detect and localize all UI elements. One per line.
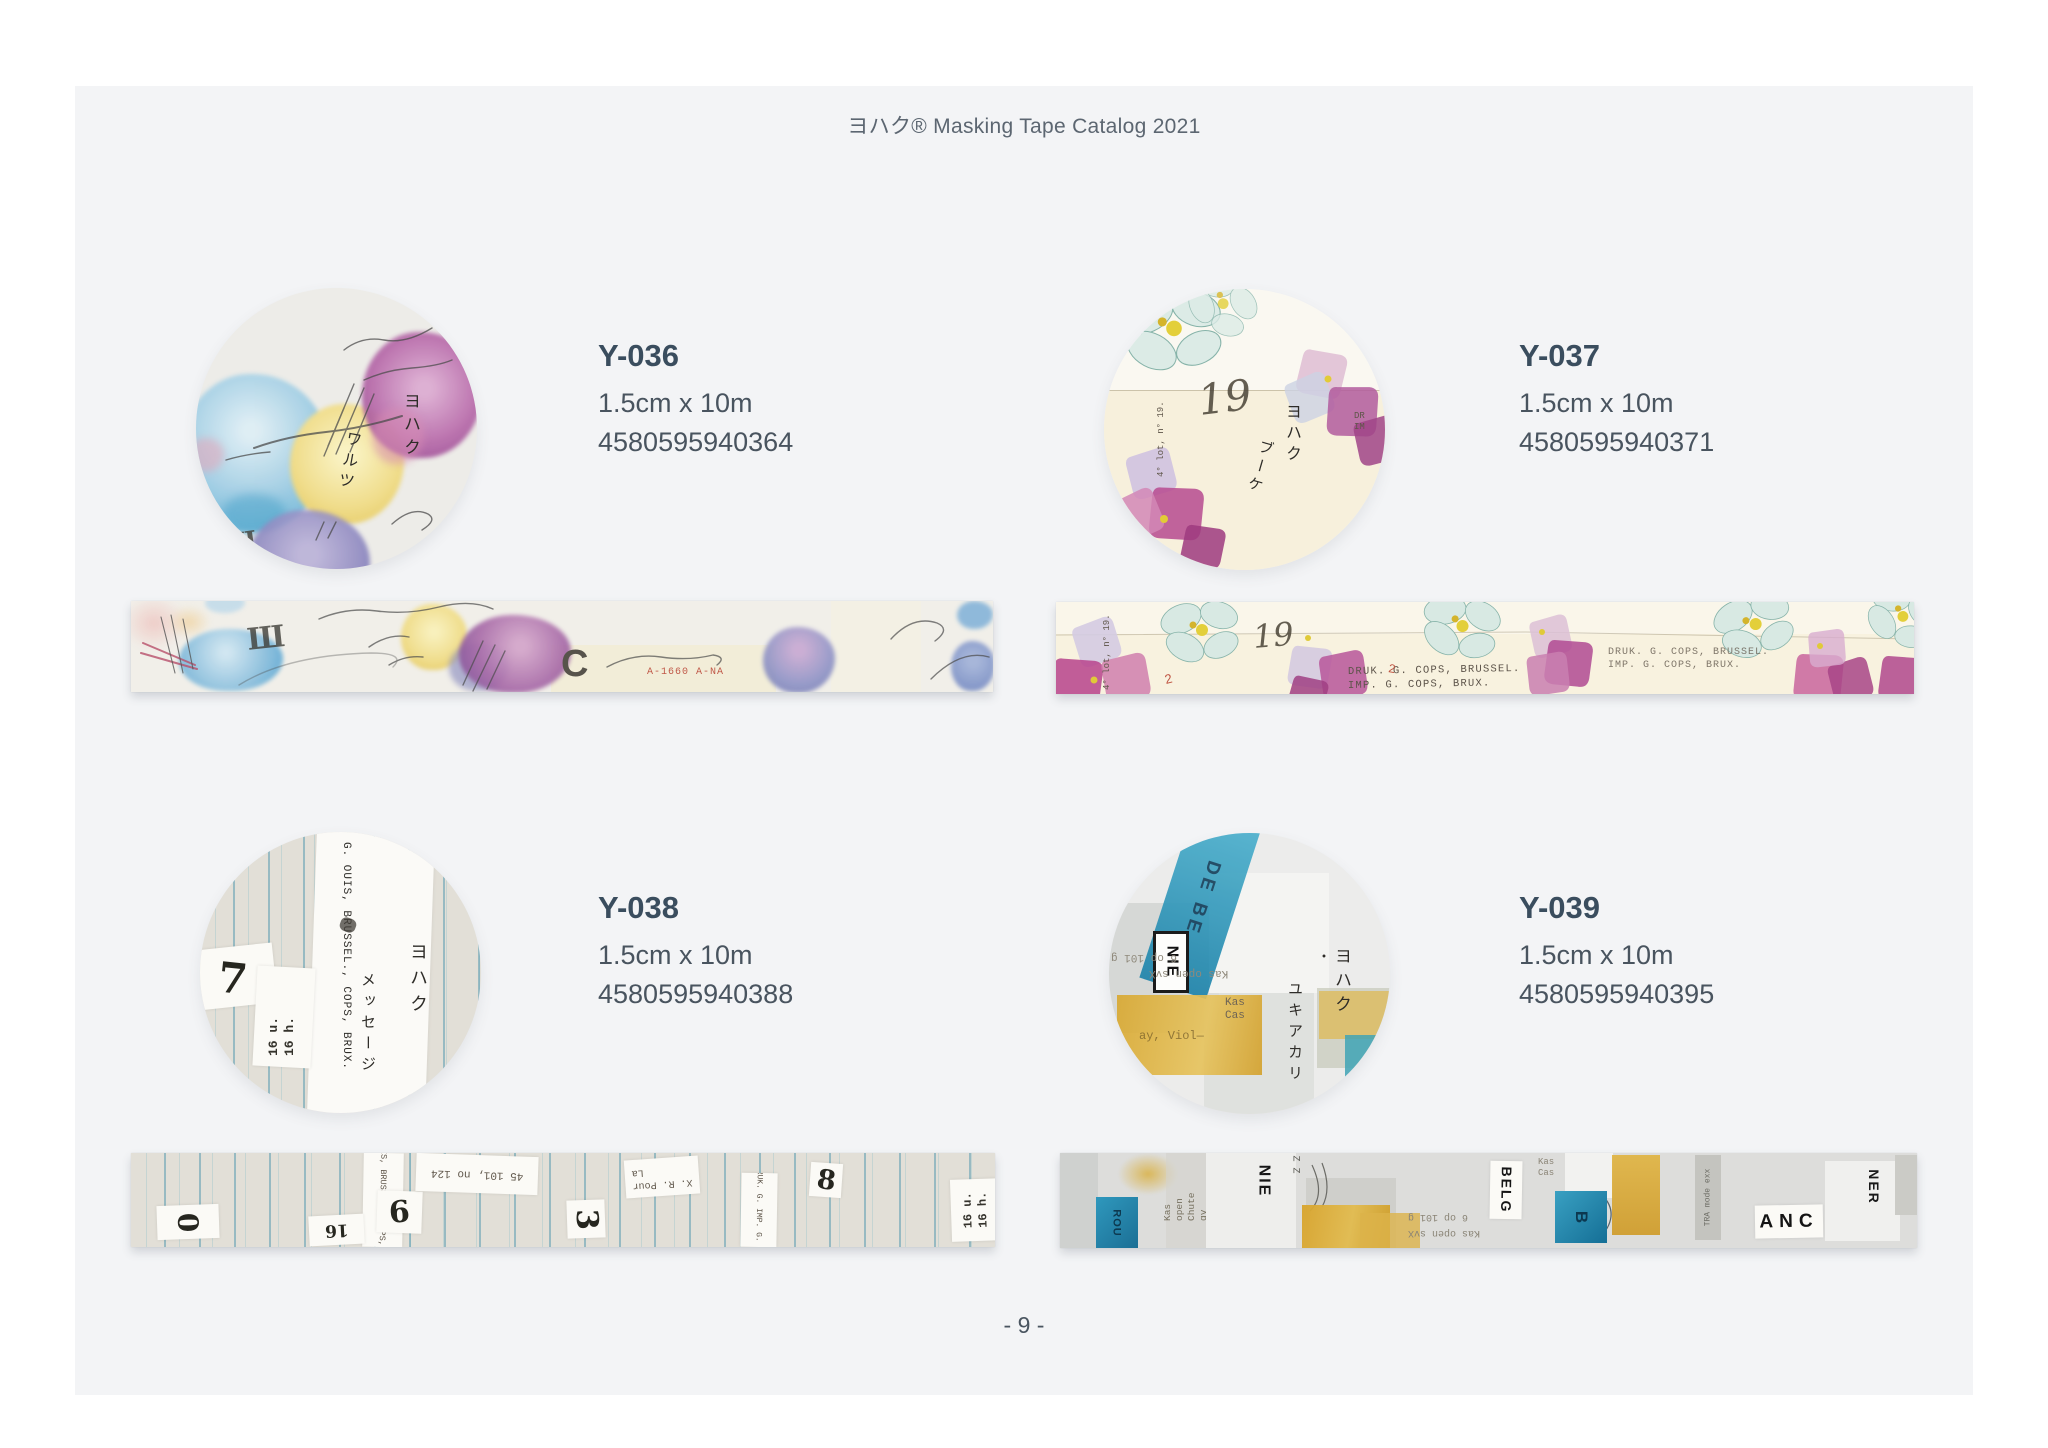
- edge-print-text: DR IM: [1354, 411, 1365, 433]
- ref-number-upside: 45 101, no 124: [431, 1166, 524, 1181]
- belg-label-text: BELG: [1498, 1166, 1515, 1213]
- plate-number-text: A-1660 A-NA: [647, 667, 724, 678]
- paper-scrap-pour: X. R. Pour La: [624, 1155, 700, 1198]
- product-info-y036: Y-036 1.5cm x 10m 4580595940364: [598, 338, 793, 462]
- anc-label-text: ANC: [1759, 1210, 1819, 1233]
- typewriter-text: Kas open svX: [1408, 1227, 1480, 1238]
- digit-3: 3: [568, 1208, 604, 1230]
- faint-print-text: ay, Viol—: [1139, 1029, 1204, 1043]
- scribble-art: [196, 288, 477, 569]
- product-size: 1.5cm x 10m: [1519, 384, 1714, 423]
- digit-7: 7: [216, 953, 250, 1005]
- b-label-text: B: [1571, 1211, 1591, 1223]
- belg-label: BELG: [1489, 1161, 1522, 1220]
- paper-scrap-print: DRUK. G. IMP. G. CO: [740, 1173, 777, 1247]
- product-barcode: 4580595940395: [1519, 975, 1714, 1014]
- paper-scrap-digit: 3: [566, 1199, 605, 1238]
- red-mark: 2: [1163, 671, 1174, 687]
- druk-vertical-text: DRUK. G. IMP. G. CO: [754, 1173, 765, 1247]
- product-barcode: 4580595940364: [598, 423, 793, 462]
- teal-collage-patch: [1345, 1035, 1387, 1093]
- product-swatch-circle-y039: DE BE NIE 6 op 101 g Kas open svX ay, Vi…: [1109, 833, 1390, 1114]
- typewriter-text: 6 op 101 g: [1111, 951, 1177, 963]
- product-barcode: 4580595940388: [598, 975, 793, 1014]
- stamp-mark: Ш: [245, 619, 286, 658]
- brand-vertical-text: ヨハク: [1280, 403, 1304, 466]
- brand-vertical-text: ヨハク: [1329, 947, 1354, 1019]
- tape-name-vertical-text: メッセージ: [358, 972, 379, 1077]
- lot-number-text: 4° lot, n° 19.: [1156, 401, 1166, 477]
- product-info-y039: Y-039 1.5cm x 10m 4580595940395: [1519, 890, 1714, 1014]
- tra-text: TRA mode exx: [1704, 1169, 1713, 1227]
- printer-vertical-text: G. OUIS, BRUSSEL., COPS, BRUX.: [340, 842, 352, 1070]
- hours-text: 16 u. 16 h.: [266, 1017, 298, 1056]
- product-swatch-circle-y037: 19 ヨハク ブーケ DR IM 4° lot, n° 19.: [1104, 289, 1385, 570]
- product-swatch-circle-y036: ヨハク ワルツ Ш: [196, 288, 477, 569]
- debe-label-text: DE BE: [1179, 857, 1224, 938]
- digit-16-upside: 16: [324, 1219, 349, 1240]
- hydrangea-flower: [1114, 289, 1270, 378]
- lot-number-text: 4° lot, n° 19.: [1102, 614, 1112, 690]
- letter-c-print: C: [561, 643, 588, 686]
- paper-scrap-ref: 45 101, no 124: [415, 1153, 538, 1195]
- digit-0: 0: [171, 1212, 205, 1233]
- gray-printed-column: TRA mode exx: [1695, 1155, 1721, 1240]
- digit-8: 8: [815, 1163, 838, 1196]
- product-tape-strip-y038: 0 G. OUIS, BRUSSEL., COPS, BRUX. 16 6 45…: [131, 1153, 995, 1247]
- print-line2: IMP. G. COPS, BRUX.: [1348, 678, 1491, 692]
- flower-art: 19: [1104, 289, 1385, 570]
- blue-b-patch: B: [1555, 1191, 1607, 1243]
- typewriter-text: 6 op 101 g: [1408, 1211, 1468, 1222]
- paper-scrap-hours: 16 u. 16 h.: [950, 1178, 995, 1242]
- paper-scrap-digit: 6: [376, 1190, 422, 1234]
- typewriter-text: Kas open svX: [1149, 967, 1228, 979]
- product-code: Y-036: [598, 338, 793, 374]
- anc-label: ANC: [1755, 1204, 1824, 1238]
- print-line2b: IMP. G. COPS, BRUX.: [1608, 660, 1741, 671]
- stamp-mark: Ш: [222, 526, 259, 560]
- product-swatch-circle-y038: 7 16 u. 16 h. G. OUIS, BRUSSEL., COPS, B…: [200, 832, 481, 1113]
- brand-vertical-text: ヨハク: [398, 392, 423, 461]
- flower-art: 19 DRUK. G. COPS, BRUSSEL. IMP. G. COPS,…: [1056, 602, 1914, 694]
- stamp-19: 19: [1251, 615, 1295, 656]
- page-number: - 9 -: [0, 1312, 2048, 1339]
- product-tape-strip-y037: 19 DRUK. G. COPS, BRUSSEL. IMP. G. COPS,…: [1056, 602, 1914, 694]
- yellow-collage-patch: [1612, 1155, 1660, 1235]
- product-code: Y-038: [598, 890, 793, 926]
- product-barcode: 4580595940371: [1519, 423, 1714, 462]
- pour-text-upside: X. R. Pour La: [631, 1162, 693, 1192]
- product-tape-strip-y036: Ш C A-1660 A-NA: [131, 601, 993, 692]
- catalog-page: ヨハク® Masking Tape Catalog 2021 ヨハク ワルツ Ш…: [0, 0, 2048, 1448]
- brand-vertical-text: ヨハク: [404, 942, 430, 1020]
- product-info-y037: Y-037 1.5cm x 10m 4580595940371: [1519, 338, 1714, 462]
- print-line1: DRUK. G. COPS, BRUSSEL.: [1348, 663, 1521, 678]
- ner-label-text: NER: [1866, 1169, 1882, 1205]
- product-size: 1.5cm x 10m: [598, 936, 793, 975]
- paper-scrap-digit: 0: [156, 1204, 219, 1240]
- product-tape-strip-y039: ROU Kas open Chute qv NIE Z Z 6 op 101 g…: [1060, 1153, 1917, 1248]
- collage-patch: [1895, 1155, 1917, 1215]
- paper-scrap-digit: 16: [308, 1214, 364, 1247]
- kas-cas-text: Kas Cas: [1225, 997, 1245, 1023]
- hours-text: 16 u. 16 h.: [960, 1191, 991, 1228]
- paper-scrap-digit: 8: [809, 1162, 843, 1198]
- product-info-y038: Y-038 1.5cm x 10m 4580595940388: [598, 890, 793, 1014]
- product-code: Y-039: [1519, 890, 1714, 926]
- kas-cas-text: Kas Cas: [1538, 1157, 1554, 1179]
- product-code: Y-037: [1519, 338, 1714, 374]
- digit-6: 6: [388, 1194, 411, 1230]
- stamp-19: 19: [1195, 370, 1254, 425]
- tape-name-vertical-text: ユキアカリ: [1285, 981, 1306, 1086]
- product-size: 1.5cm x 10m: [1519, 936, 1714, 975]
- print-line1b: DRUK. G. COPS, BRUSSEL.: [1608, 647, 1769, 658]
- product-size: 1.5cm x 10m: [598, 384, 793, 423]
- ner-print: NER: [1860, 1161, 1888, 1213]
- page-title: ヨハク® Masking Tape Catalog 2021: [0, 110, 2048, 140]
